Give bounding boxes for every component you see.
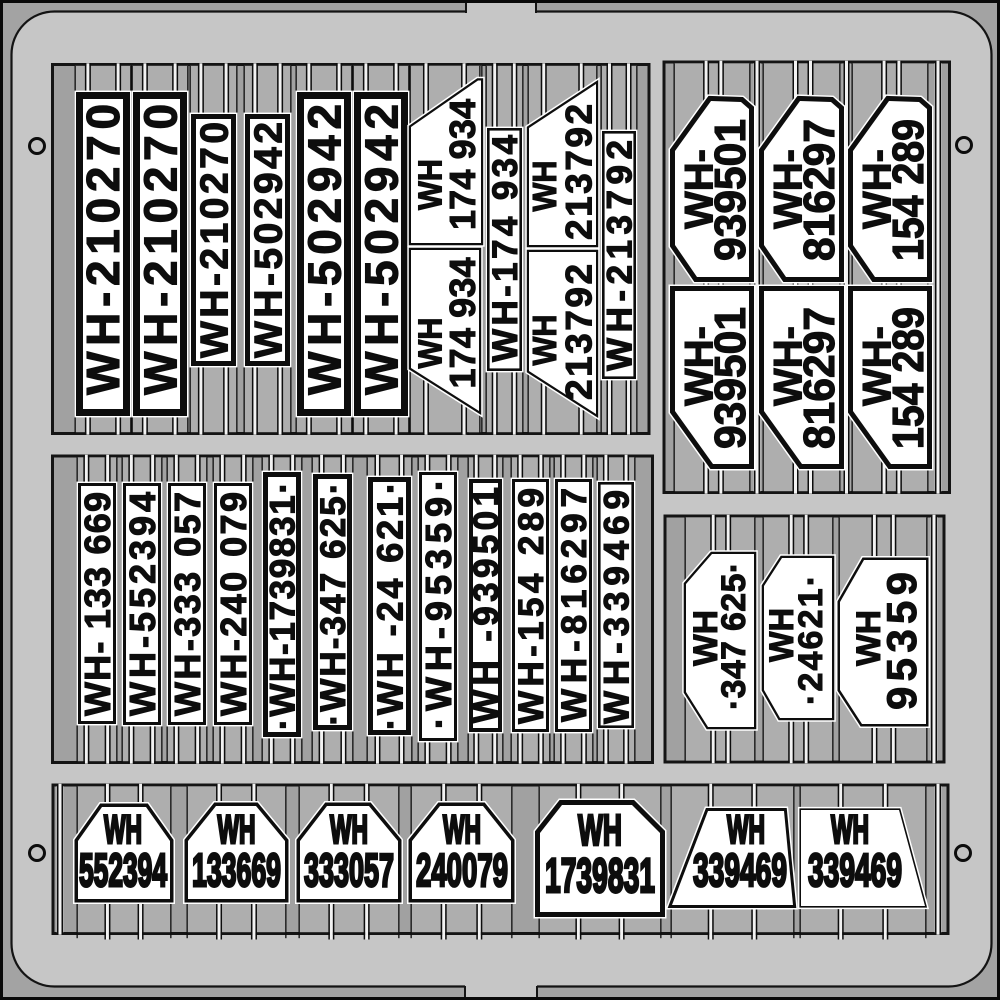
svg-text:·WH-95359·: ·WH-95359·: [418, 473, 459, 729]
svg-text:174 934: 174 934: [442, 257, 483, 388]
svg-text:WH-502942: WH-502942: [299, 98, 351, 395]
svg-text:816297: 816297: [795, 307, 844, 449]
svg-text:133669: 133669: [192, 844, 281, 895]
svg-text:WH: WH: [443, 807, 481, 851]
svg-text:·WH -24 621·: ·WH -24 621·: [369, 479, 410, 730]
svg-text:WH-213792: WH-213792: [601, 134, 640, 371]
svg-text:154 289: 154 289: [883, 119, 933, 261]
svg-text:WH-174 934: WH-174 934: [486, 132, 525, 362]
svg-text:WH -939501: WH -939501: [467, 483, 506, 723]
svg-text:95359: 95359: [878, 567, 925, 710]
svg-text:·WH-347 625·: ·WH-347 625·: [314, 480, 353, 725]
svg-text:333057: 333057: [304, 845, 394, 896]
svg-text:·347 625·: ·347 625·: [715, 562, 753, 710]
svg-text:WH-816297: WH-816297: [555, 482, 594, 722]
svg-text:552394: 552394: [79, 844, 167, 896]
svg-text:939501: 939501: [706, 307, 755, 449]
svg-text:1739831: 1739831: [545, 849, 655, 903]
svg-text:WH-339469: WH-339469: [598, 484, 637, 724]
svg-text:154 289: 154 289: [883, 307, 933, 449]
svg-text:WH: WH: [578, 805, 622, 855]
svg-text:939501: 939501: [706, 119, 755, 261]
svg-text:WH-333 057: WH-333 057: [167, 490, 208, 717]
svg-text:WH-210270: WH-210270: [194, 118, 237, 358]
svg-text:·WH-1739831·: ·WH-1739831·: [264, 480, 303, 730]
svg-text:WH-502942: WH-502942: [356, 98, 408, 395]
svg-text:213792: 213792: [558, 101, 599, 240]
svg-text:213792: 213792: [558, 261, 599, 400]
svg-text:·24621·: ·24621·: [792, 573, 830, 705]
svg-text:WH-552394: WH-552394: [122, 488, 163, 716]
svg-text:816297: 816297: [795, 119, 844, 261]
svg-text:174 934: 174 934: [442, 99, 483, 230]
svg-text:WH-210270: WH-210270: [135, 98, 187, 395]
svg-text:WH- 133 669: WH- 133 669: [77, 491, 118, 716]
svg-text:WH-154 289: WH-154 289: [512, 484, 551, 724]
svg-text:339469: 339469: [693, 845, 787, 897]
svg-text:339469: 339469: [808, 845, 902, 897]
svg-text:WH-240 079: WH-240 079: [213, 490, 254, 717]
svg-text:WH-502942: WH-502942: [248, 118, 291, 358]
svg-text:WH-210270: WH-210270: [77, 98, 129, 395]
svg-text:240079: 240079: [416, 846, 508, 897]
